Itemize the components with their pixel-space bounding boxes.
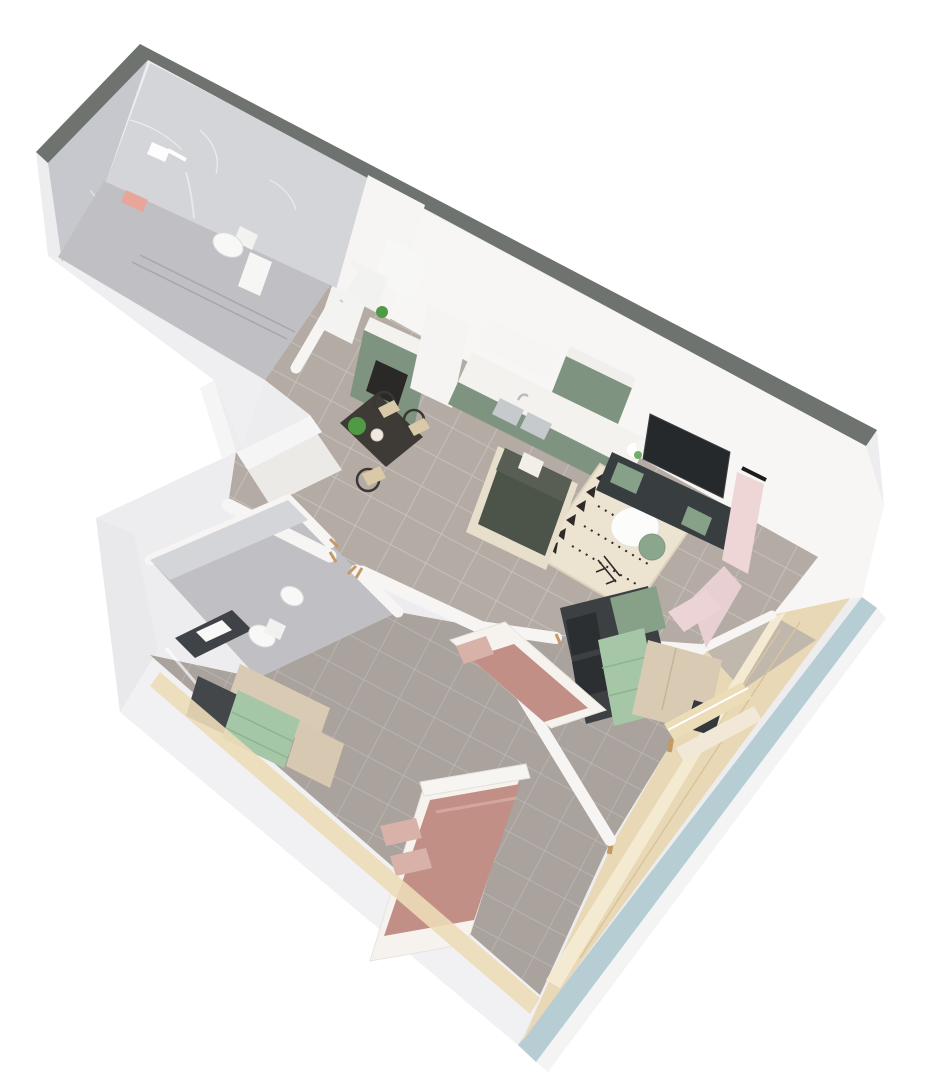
side-table-green	[639, 534, 665, 560]
table-jar	[371, 429, 383, 441]
counter-plant	[376, 306, 388, 318]
apartment-scene	[0, 0, 928, 1080]
shelf-cubby-1	[566, 612, 602, 656]
floor-plan-render	[0, 0, 928, 1080]
table-plant	[348, 417, 366, 435]
